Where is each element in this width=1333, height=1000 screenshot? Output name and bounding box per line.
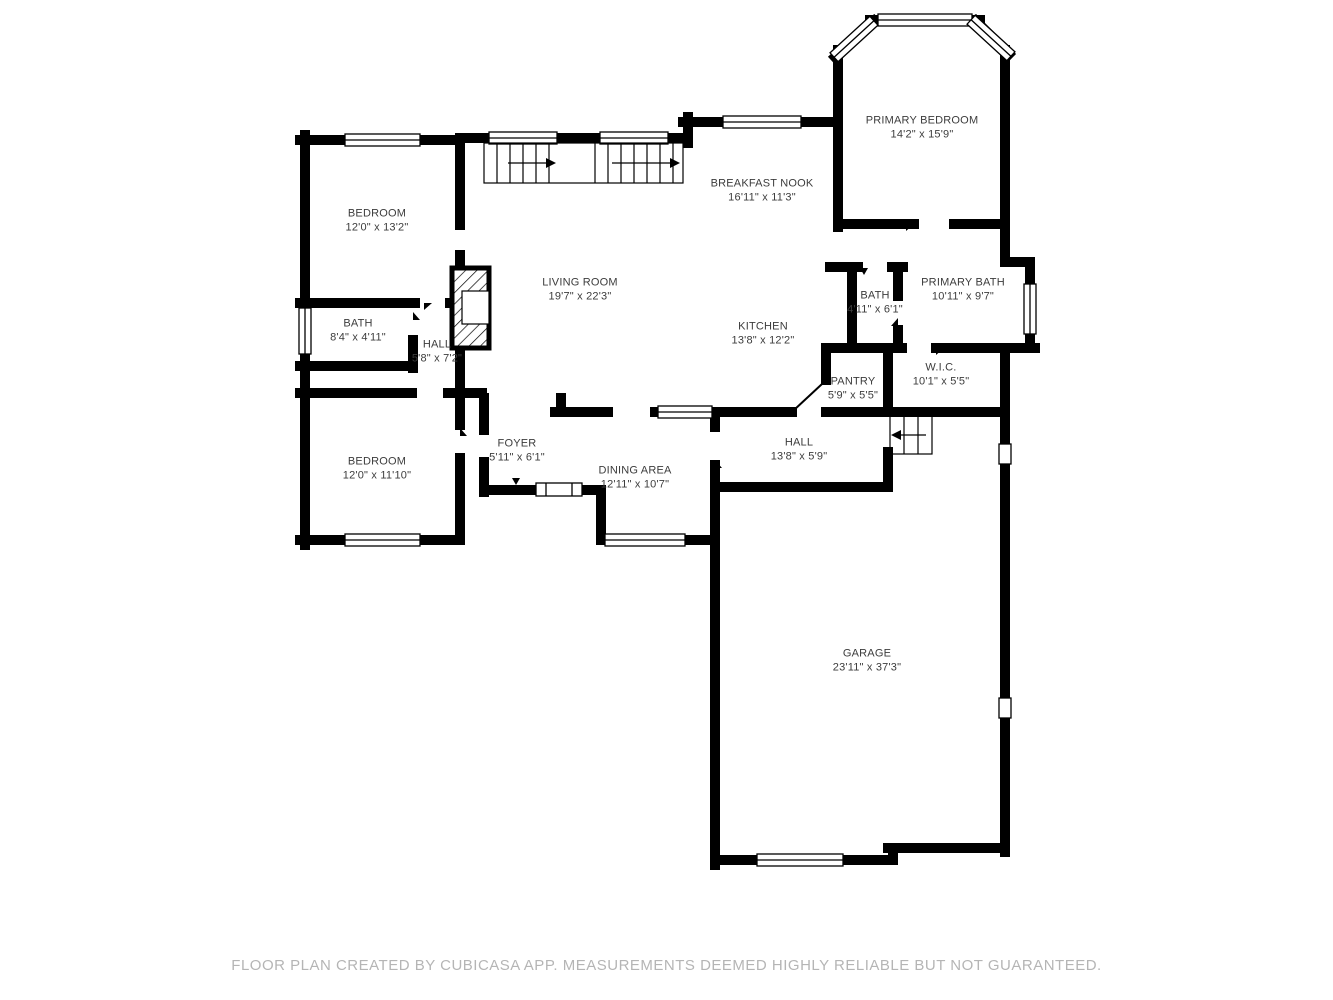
room-label-living-room: LIVING ROOM 19'7" x 22'3" — [542, 276, 618, 305]
room-dims: 10'1" x 5'5" — [913, 375, 970, 389]
window-garage-right-lower — [999, 698, 1011, 718]
room-dims: 23'11" x 37'3" — [833, 661, 901, 675]
room-label-bedroom-2: BEDROOM 12'0" x 11'10" — [343, 455, 411, 484]
room-dims: 19'7" x 22'3" — [542, 290, 618, 304]
room-label-primary-bedroom: PRIMARY BEDROOM 14'2" x 15'9" — [866, 114, 979, 143]
room-name: BEDROOM — [343, 455, 411, 469]
steps-direction-arrow — [891, 430, 901, 440]
window-bedroom2-bottom — [345, 534, 420, 546]
room-label-garage: GARAGE 23'11" x 37'3" — [833, 647, 901, 676]
room-dims: 10'11" x 9'7" — [921, 290, 1005, 304]
room-name: GARAGE — [833, 647, 901, 661]
door-marker — [512, 478, 520, 485]
room-name: BEDROOM — [346, 207, 409, 221]
floor-plan-page: PRIMARY BEDROOM 14'2" x 15'9" BREAKFAST … — [0, 0, 1333, 1000]
room-name: HALL — [412, 338, 462, 352]
door-marker — [413, 312, 420, 320]
room-name: PRIMARY BATH — [921, 276, 1005, 290]
room-label-hall-small: HALL 5'8" x 7'2" — [412, 338, 462, 367]
walls — [300, 20, 1035, 865]
window-stairs-right — [600, 132, 668, 144]
room-dims: 5'8" x 7'2" — [412, 352, 462, 366]
room-label-dining-area: DINING AREA 12'11" x 10'7" — [598, 464, 671, 493]
room-name: KITCHEN — [732, 320, 795, 334]
room-dims: 8'4" x 4'11" — [330, 331, 386, 345]
room-dims: 5'11" x 6'1" — [489, 451, 545, 465]
door-marker — [891, 318, 898, 326]
room-name: DINING AREA — [598, 464, 671, 478]
window-bay-top — [878, 14, 972, 26]
room-dims: 13'8" x 5'9" — [771, 450, 828, 464]
stairs-direction-arrow — [670, 158, 680, 168]
room-dims: 14'2" x 15'9" — [866, 128, 979, 142]
room-name: LIVING ROOM — [542, 276, 618, 290]
window-garage-door — [757, 854, 843, 866]
room-dims: 12'11" x 10'7" — [598, 478, 671, 492]
room-name: PANTRY — [828, 375, 878, 389]
room-label-bath-small: BATH 4'11" x 6'1" — [847, 289, 903, 318]
room-label-wic: W.I.C. 10'1" x 5'5" — [913, 361, 970, 390]
window-bath-left — [299, 308, 311, 354]
room-name: BATH — [847, 289, 903, 303]
window-living-bottom — [658, 406, 712, 418]
staircase-main — [484, 143, 683, 183]
room-name: BREAKFAST NOOK — [711, 177, 814, 191]
window-bedroom1-top — [345, 134, 420, 146]
window-bay-right — [967, 15, 1015, 60]
room-name: BATH — [330, 317, 386, 331]
footer-disclaimer: FLOOR PLAN CREATED BY CUBICASA APP. MEAS… — [231, 957, 1101, 974]
pantry-door-leaf — [794, 384, 822, 410]
door-marker — [424, 303, 432, 310]
room-label-hall-right: HALL 13'8" x 5'9" — [771, 436, 828, 465]
window-primary-bath — [1024, 284, 1036, 334]
room-name: FOYER — [489, 437, 545, 451]
window-bay-left — [830, 16, 878, 61]
room-label-primary-bath: PRIMARY BATH 10'11" x 9'7" — [921, 276, 1005, 305]
window-dining-bottom — [605, 534, 685, 546]
room-dims: 12'0" x 13'2" — [346, 221, 409, 235]
fireplace — [452, 268, 489, 348]
window-garage-right-upper — [999, 444, 1011, 464]
front-door — [536, 483, 582, 496]
room-name: HALL — [771, 436, 828, 450]
room-label-foyer: FOYER 5'11" x 6'1" — [489, 437, 545, 466]
stairs-direction-arrow — [546, 158, 556, 168]
room-name: W.I.C. — [913, 361, 970, 375]
room-dims: 13'8" x 12'2" — [732, 334, 795, 348]
room-dims: 5'9" x 5'5" — [828, 389, 878, 403]
window-stairs-left — [489, 132, 557, 144]
room-label-kitchen: KITCHEN 13'8" x 12'2" — [732, 320, 795, 349]
garage-entry-steps — [890, 416, 932, 454]
room-dims: 4'11" x 6'1" — [847, 303, 903, 317]
room-dims: 16'11" x 11'3" — [711, 191, 814, 205]
window-breakfast-nook — [723, 116, 801, 128]
room-label-bedroom-1: BEDROOM 12'0" x 13'2" — [346, 207, 409, 236]
room-label-breakfast-nook: BREAKFAST NOOK 16'11" x 11'3" — [711, 177, 814, 206]
room-label-pantry: PANTRY 5'9" x 5'5" — [828, 375, 878, 404]
room-name: PRIMARY BEDROOM — [866, 114, 979, 128]
room-dims: 12'0" x 11'10" — [343, 469, 411, 483]
floor-plan-drawing — [0, 0, 1333, 1000]
room-label-bath-left: BATH 8'4" x 4'11" — [330, 317, 386, 346]
